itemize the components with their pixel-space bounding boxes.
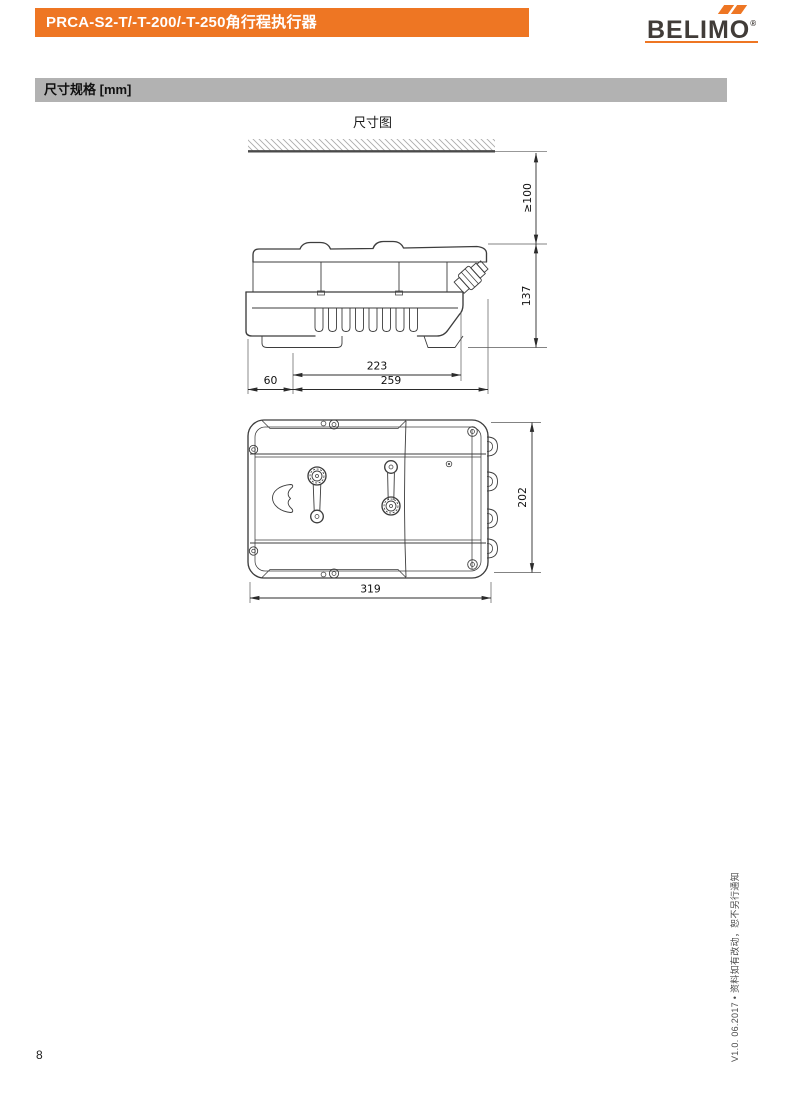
dim-height-label: 137 <box>520 286 533 307</box>
dim-body-width-label: 223 <box>367 360 388 373</box>
page-number: 8 <box>36 1048 43 1062</box>
dim-length-label: 319 <box>360 583 381 596</box>
version-note: V1.0. 06.2017 • 资料如有改动，恕不另行通知 <box>728 872 741 1062</box>
dim-depth: 202 <box>491 423 541 573</box>
dim-clearance-label: ≥100 <box>521 183 534 213</box>
ceiling-hatch <box>248 139 547 151</box>
dim-height: 137 <box>468 244 547 348</box>
dim-widths: 223 60 259 <box>248 299 488 394</box>
top-view-drawing <box>248 420 498 578</box>
cover-screws <box>249 420 477 578</box>
clamp-lever-left <box>308 467 326 523</box>
dim-length: 319 <box>250 582 491 603</box>
clamp-lever-right <box>382 461 400 515</box>
dim-offset-label: 60 <box>264 374 278 387</box>
housing-ribs <box>315 308 418 332</box>
dim-total-width-label: 259 <box>381 374 402 387</box>
datasheet-page: PRCA-S2-T/-T-200/-T-250角行程执行器 BELIMO® 尺寸… <box>0 0 800 1094</box>
crescent-opening <box>273 485 293 513</box>
side-view-drawing <box>246 242 491 348</box>
cable-gland <box>452 258 491 296</box>
dim-clearance: ≥100 <box>521 153 536 244</box>
dim-depth-label: 202 <box>516 487 529 508</box>
dimension-drawing: ≥100 <box>0 0 800 650</box>
